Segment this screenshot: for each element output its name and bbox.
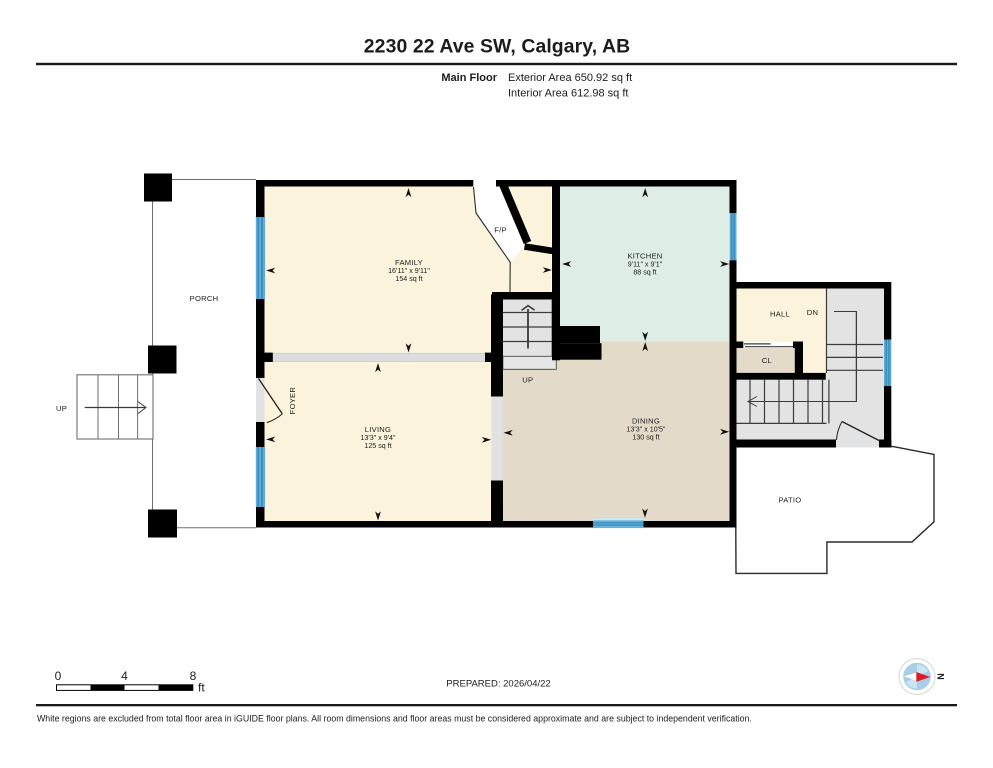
svg-text:UP: UP <box>522 376 533 385</box>
svg-text:KITCHEN: KITCHEN <box>627 252 662 261</box>
svg-text:4: 4 <box>121 669 128 683</box>
svg-text:154 sq ft: 154 sq ft <box>395 275 422 283</box>
svg-text:F/P: F/P <box>494 226 507 235</box>
svg-text:ft: ft <box>198 681 205 695</box>
svg-text:8: 8 <box>190 669 197 683</box>
svg-text:16'11" x 9'11": 16'11" x 9'11" <box>388 267 430 275</box>
svg-text:Interior Area 612.98 sq ft: Interior Area 612.98 sq ft <box>508 88 628 100</box>
svg-text:DN: DN <box>807 308 818 317</box>
svg-text:88 sq ft: 88 sq ft <box>633 269 656 277</box>
svg-text:PATIO: PATIO <box>779 496 802 505</box>
svg-text:PORCH: PORCH <box>190 294 219 303</box>
svg-text:UP: UP <box>56 404 67 413</box>
svg-text:White regions are excluded fro: White regions are excluded from total fl… <box>37 714 752 724</box>
svg-text:CL: CL <box>762 356 772 365</box>
svg-text:Exterior Area 650.92 sq ft: Exterior Area 650.92 sq ft <box>508 72 632 84</box>
svg-text:FAMILY: FAMILY <box>395 258 423 267</box>
svg-text:DINING: DINING <box>632 417 660 426</box>
svg-text:2230 22 Ave SW, Calgary, AB: 2230 22 Ave SW, Calgary, AB <box>364 36 630 58</box>
svg-text:LIVING: LIVING <box>365 425 391 434</box>
svg-text:HALL: HALL <box>770 310 790 319</box>
svg-text:9'11" x 9'1": 9'11" x 9'1" <box>628 261 663 269</box>
svg-text:13'3" x 9'4": 13'3" x 9'4" <box>361 434 396 442</box>
svg-text:PREPARED: 2026/04/22: PREPARED: 2026/04/22 <box>446 679 550 690</box>
svg-text:0: 0 <box>55 669 62 683</box>
svg-text:125 sq ft: 125 sq ft <box>364 442 391 450</box>
svg-text:N: N <box>935 673 945 680</box>
svg-text:130 sq ft: 130 sq ft <box>632 434 659 442</box>
svg-text:Main Floor: Main Floor <box>441 72 497 84</box>
svg-text:13'3" x 10'5": 13'3" x 10'5" <box>627 426 666 434</box>
svg-text:FOYER: FOYER <box>288 387 297 415</box>
